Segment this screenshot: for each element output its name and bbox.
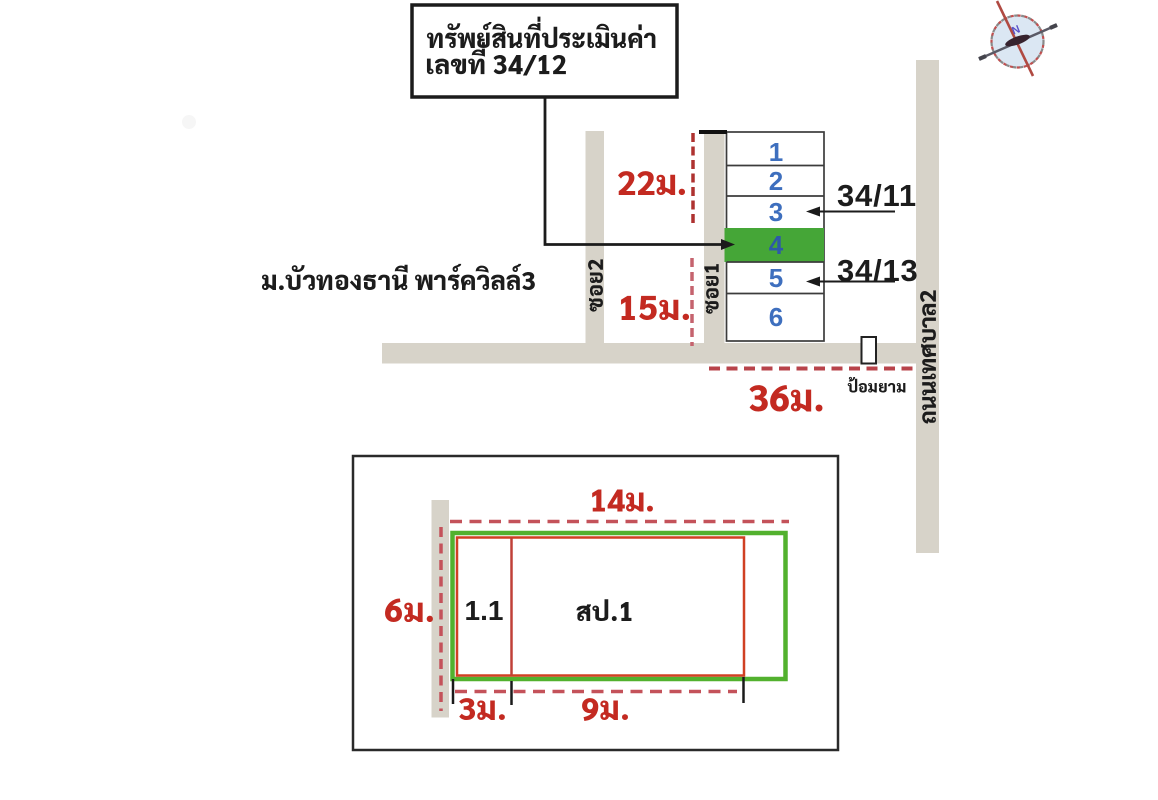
svg-text:2: 2 [769, 166, 783, 196]
svg-text:4: 4 [769, 230, 784, 260]
svg-text:34/11: 34/11 [837, 178, 917, 213]
svg-text:6: 6 [769, 302, 783, 332]
svg-text:1: 1 [769, 137, 783, 167]
svg-text:3: 3 [769, 197, 783, 227]
svg-text:5: 5 [769, 263, 783, 293]
svg-text:1.1: 1.1 [465, 595, 504, 626]
svg-text:34/13: 34/13 [837, 253, 919, 288]
